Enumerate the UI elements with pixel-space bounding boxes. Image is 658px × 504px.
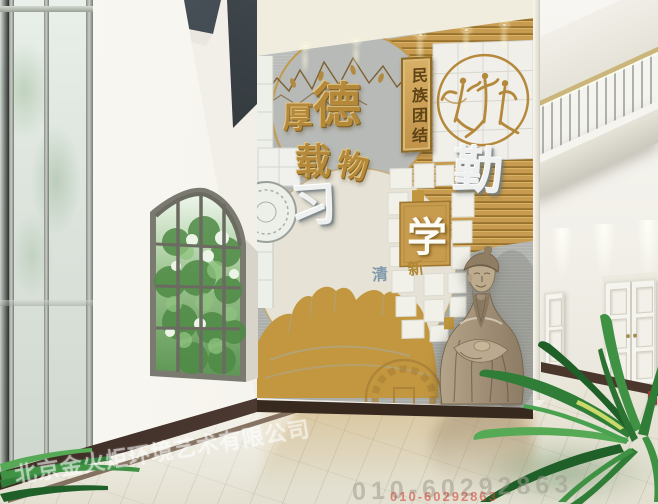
recessed-light-icon — [353, 39, 360, 43]
recessed-light-icon — [302, 44, 309, 48]
watermark-phone-red: 010-60292863 — [390, 489, 498, 504]
calligraphy-de: 德 — [313, 82, 361, 130]
glass-transom — [0, 300, 93, 306]
char-qin-diligence: 勤 — [452, 145, 505, 198]
unity-plaque: 民族团结 — [401, 56, 432, 153]
glass-transom — [0, 6, 93, 12]
char-xi-practice: 习 — [289, 180, 338, 229]
recessed-light-icon — [463, 28, 470, 32]
calligraphy-zai: 载 — [295, 144, 331, 180]
lobby-render: 厚 德 载 物 勤 习 学 新 清 民族团结 — [0, 0, 658, 504]
char-qing: 清 — [371, 266, 388, 283]
calligraphy-hou: 厚 — [283, 104, 313, 134]
char-xin-new: 新 — [407, 260, 425, 278]
arched-window — [146, 182, 260, 394]
window-reveal — [246, 240, 258, 382]
recessed-light-icon — [501, 23, 508, 27]
calligraphy-wu: 物 — [334, 149, 371, 186]
recessed-light-icon — [417, 33, 424, 37]
